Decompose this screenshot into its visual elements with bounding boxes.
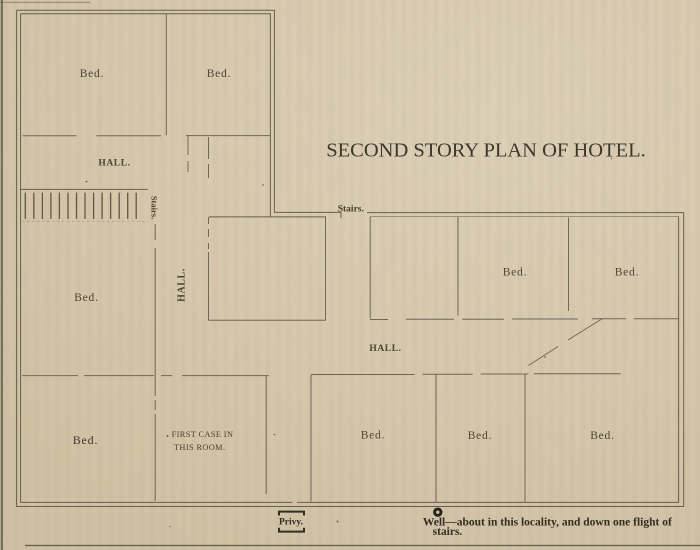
svg-text:Bed.: Bed. [503,267,528,279]
svg-text:Bed.: Bed. [73,433,99,447]
svg-text:stairs.: stairs. [433,526,463,538]
svg-text:Stairs.: Stairs. [338,205,364,215]
svg-text:HALL.: HALL. [177,268,188,302]
svg-text:Bed.: Bed. [80,68,105,80]
svg-text:Stairs.: Stairs. [150,196,160,219]
svg-text:HALL.: HALL. [98,159,130,169]
svg-text:Bed.: Bed. [468,430,493,442]
svg-text:Bed.: Bed. [207,68,232,80]
svg-text:Privy.: Privy. [279,518,303,528]
svg-text:FIRST CASE IN: FIRST CASE IN [172,430,234,439]
svg-text:Bed.: Bed. [361,430,386,442]
svg-text:Bed.: Bed. [615,267,640,279]
svg-text:SECOND STORY PLAN OF HOTEL.: SECOND STORY PLAN OF HOTEL. [326,140,646,162]
svg-text:Bed.: Bed. [74,292,99,304]
svg-text:THIS ROOM.: THIS ROOM. [174,443,225,452]
svg-text:Bed.: Bed. [590,430,615,442]
svg-text:HALL.: HALL. [369,344,401,354]
